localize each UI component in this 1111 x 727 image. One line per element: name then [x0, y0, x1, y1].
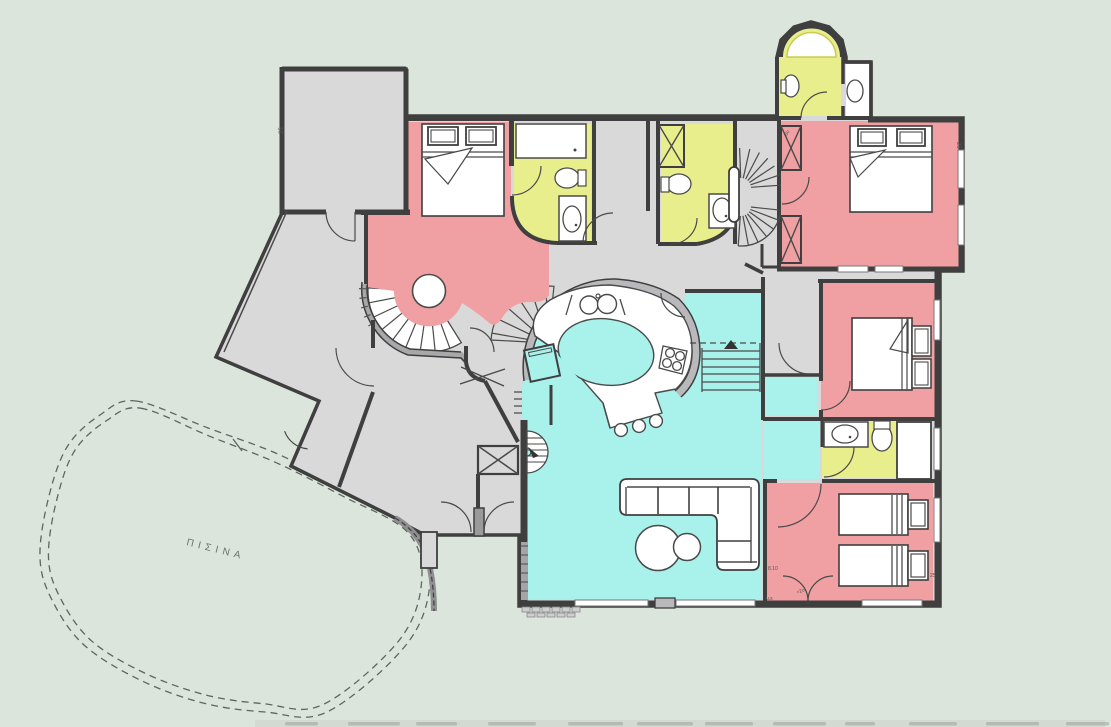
svg-text:25: 25: [955, 142, 961, 149]
svg-text:25: 25: [930, 573, 936, 579]
svg-text:25: 25: [279, 127, 285, 134]
svg-text:8.10: 8.10: [768, 566, 778, 572]
svg-text:u.s: u.s: [766, 596, 773, 602]
